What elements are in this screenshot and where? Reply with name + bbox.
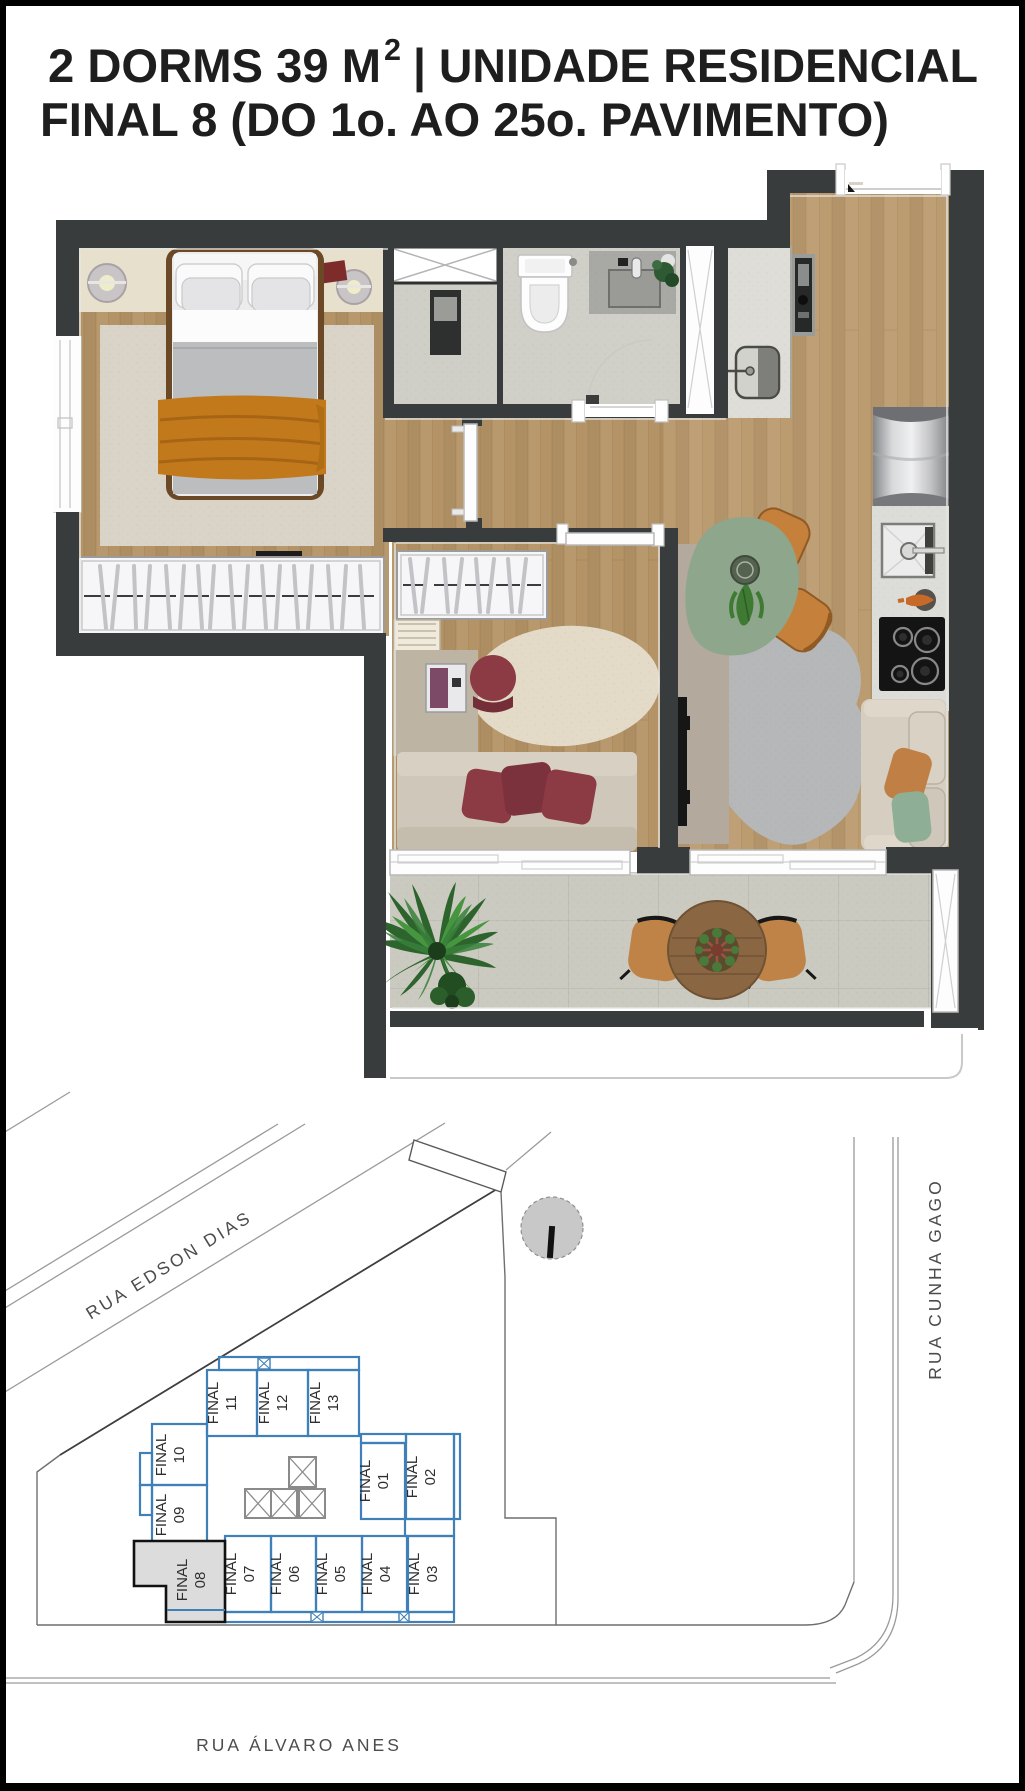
svg-text:FINAL: FINAL	[205, 1382, 222, 1425]
svg-text:09: 09	[171, 1507, 188, 1524]
svg-text:FINAL 8 (DO 1o. AO 25o. PAVIME: FINAL 8 (DO 1o. AO 25o. PAVIMENTO)	[40, 93, 889, 146]
svg-text:05: 05	[332, 1566, 349, 1583]
svg-text:FINAL: FINAL	[223, 1553, 240, 1596]
svg-text:FINAL: FINAL	[268, 1553, 285, 1596]
svg-text:RUA CUNHA GAGO: RUA CUNHA GAGO	[925, 1178, 945, 1379]
svg-text:FINAL: FINAL	[174, 1559, 191, 1602]
svg-text:FINAL: FINAL	[307, 1382, 324, 1425]
svg-text:RUA ÁLVARO ANES: RUA ÁLVARO ANES	[196, 1735, 402, 1755]
svg-text:04: 04	[377, 1566, 394, 1583]
svg-text:2 DORMS 39 M: 2 DORMS 39 M	[48, 39, 381, 92]
svg-text:02: 02	[422, 1469, 439, 1486]
svg-text:FINAL: FINAL	[314, 1553, 331, 1596]
svg-text:08: 08	[192, 1572, 209, 1589]
svg-text:03: 03	[424, 1566, 441, 1583]
svg-text:| UNIDADE RESIDENCIAL: | UNIDADE RESIDENCIAL	[413, 39, 978, 92]
svg-text:06: 06	[286, 1566, 303, 1583]
svg-text:FINAL: FINAL	[404, 1456, 421, 1499]
svg-text:FINAL: FINAL	[357, 1460, 374, 1503]
svg-text:FINAL: FINAL	[256, 1382, 273, 1425]
svg-text:FINAL: FINAL	[153, 1434, 170, 1477]
svg-text:13: 13	[325, 1395, 342, 1412]
svg-text:FINAL: FINAL	[153, 1494, 170, 1537]
svg-text:07: 07	[241, 1566, 258, 1583]
svg-text:10: 10	[171, 1447, 188, 1464]
svg-text:FINAL: FINAL	[359, 1553, 376, 1596]
svg-text:01: 01	[375, 1473, 392, 1490]
svg-text:12: 12	[274, 1395, 291, 1412]
svg-text:FINAL: FINAL	[406, 1553, 423, 1596]
svg-text:11: 11	[223, 1395, 240, 1411]
svg-text:2: 2	[384, 32, 401, 67]
